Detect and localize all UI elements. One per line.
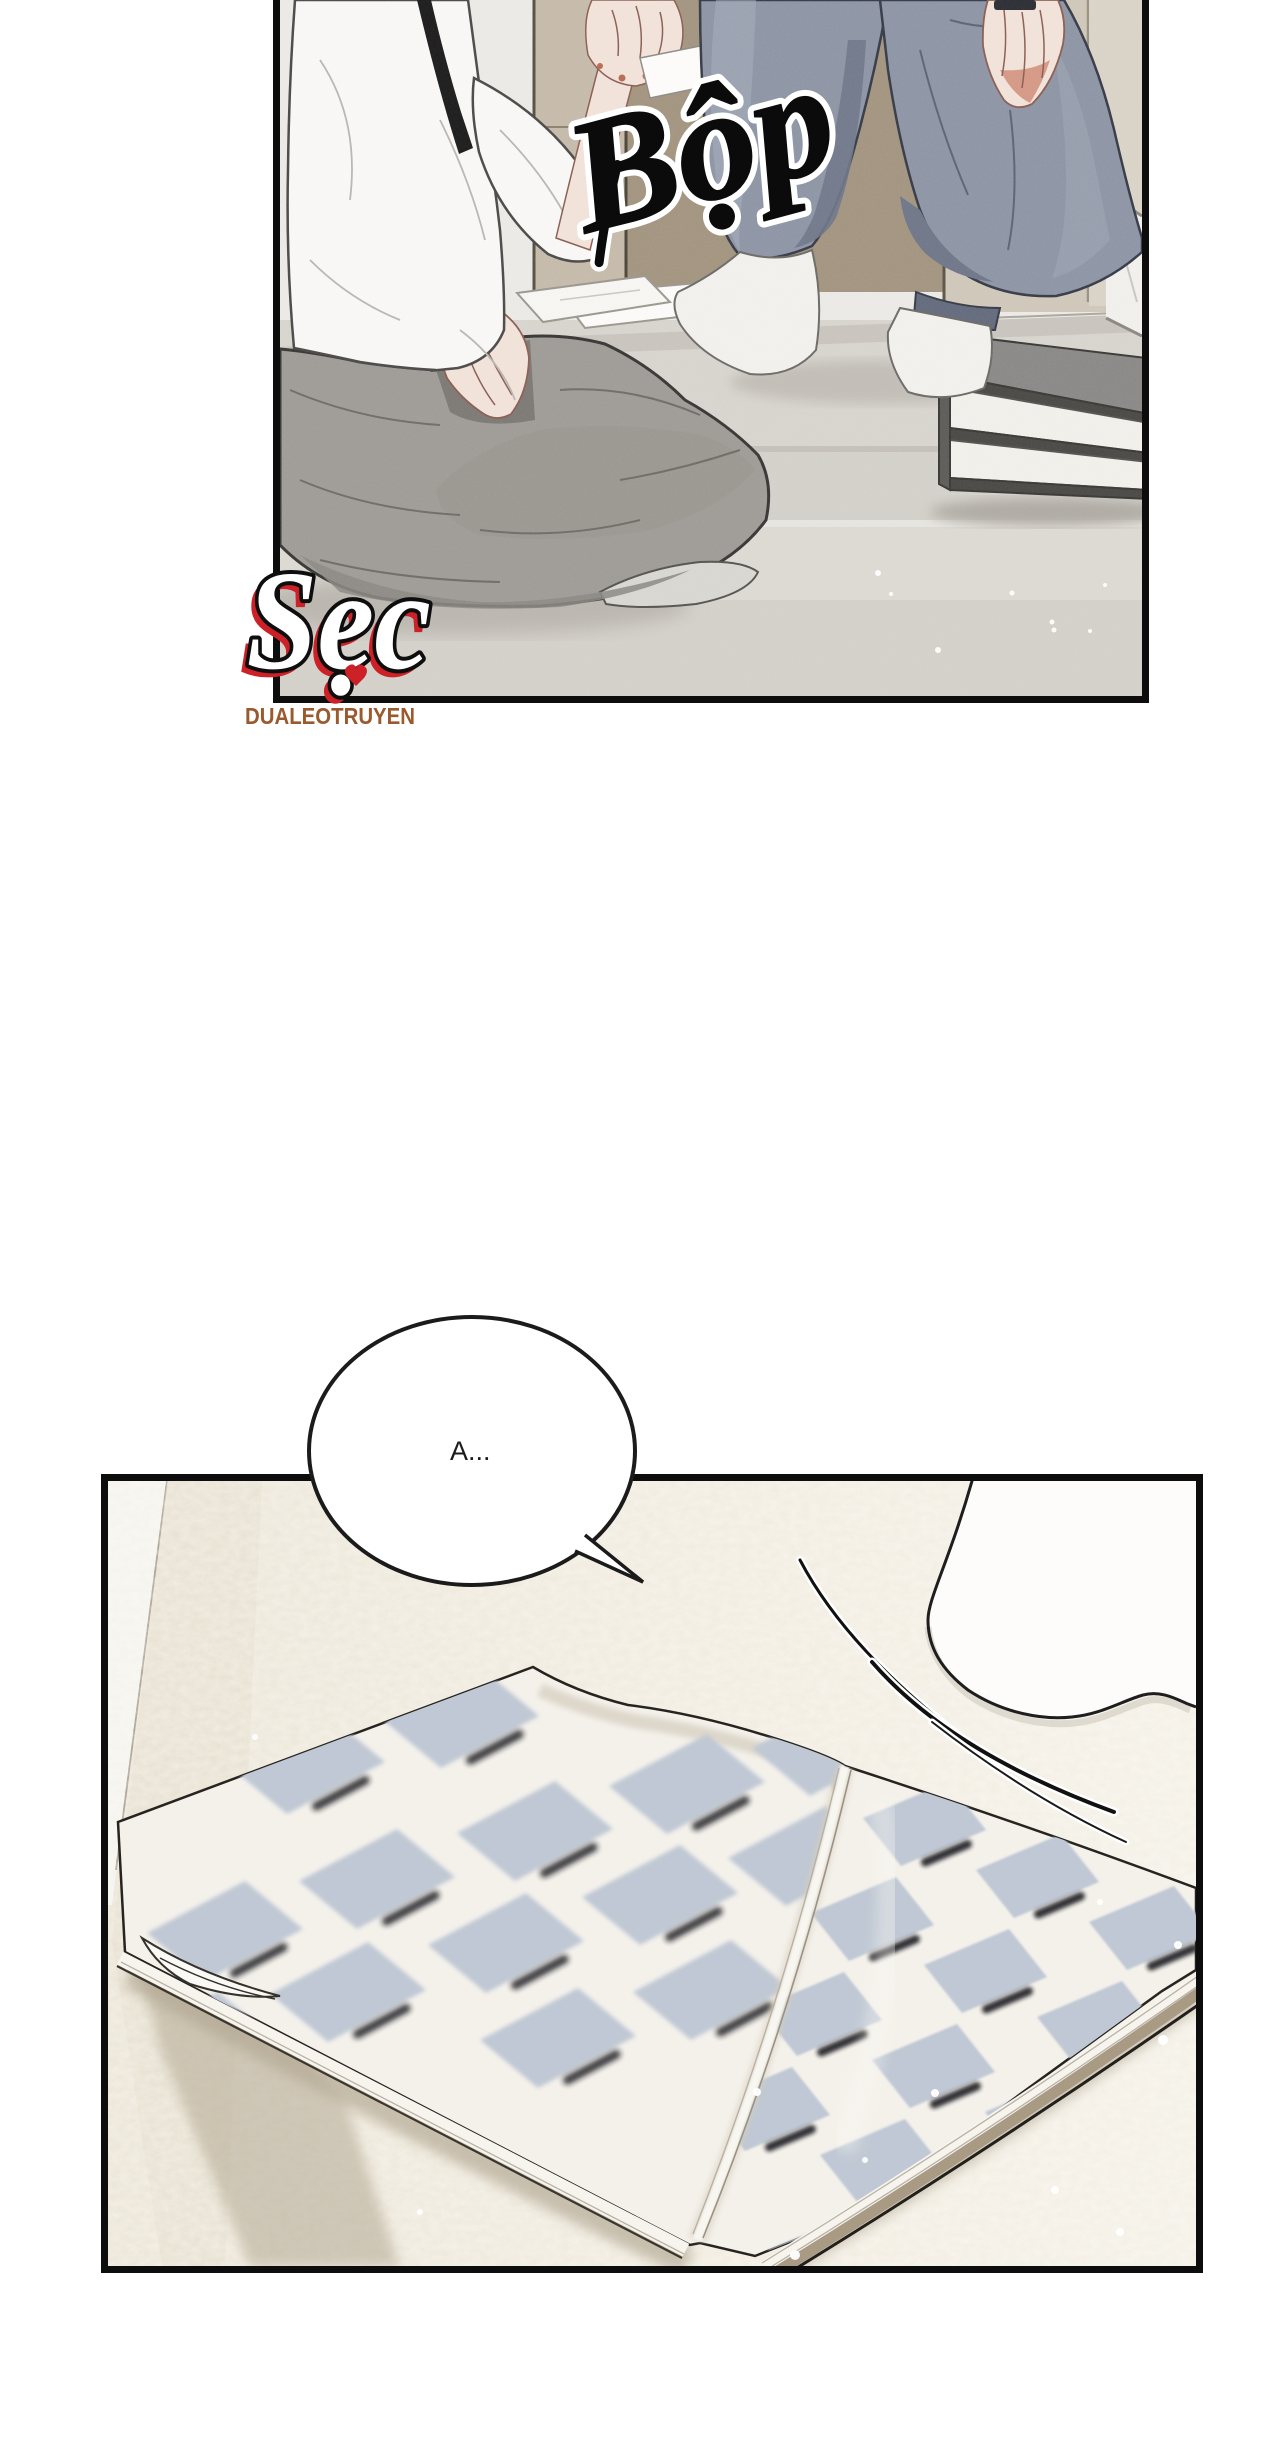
svg-text:A...: A... xyxy=(450,1436,491,1466)
svg-text:DUALEOTRUYEN: DUALEOTRUYEN xyxy=(245,703,415,729)
svg-text:Sẹc: Sẹc xyxy=(246,543,431,700)
